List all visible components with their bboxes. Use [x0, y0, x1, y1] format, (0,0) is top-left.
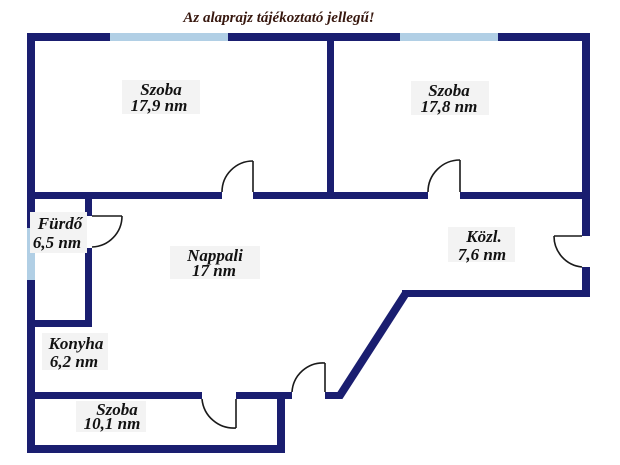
windows [27, 33, 498, 280]
wall-szoba-bottom-right-outer [277, 392, 285, 453]
wall-bottom-band-left [27, 392, 202, 399]
door-furdo-swing-arc [92, 216, 122, 247]
door-szoba1-swing-arc [222, 161, 253, 192]
wall-furdo-right-lower [85, 248, 92, 320]
wall-mid-horizontal-left [35, 192, 222, 199]
room-labels: Szoba 17,9 nm Szoba 17,8 nm Fürdő 6,5 nm… [30, 80, 515, 433]
wall-diagonal [339, 293, 406, 397]
room-label-szoba-2: Szoba 17,8 nm [411, 81, 489, 116]
room-area: 7,6 nm [458, 245, 506, 264]
room-area: 17 nm [192, 261, 236, 280]
room-label-furdo: Fürdő 6,5 nm [30, 212, 87, 253]
wall-top-rooms-divider [327, 41, 334, 192]
wall-bottom [27, 445, 285, 453]
wall-right-lower [582, 267, 590, 297]
room-area: 6,2 nm [50, 352, 98, 371]
room-name: Konyha [48, 334, 104, 353]
room-name: Közl. [465, 227, 501, 246]
wall-bottom-band-mid [236, 392, 292, 399]
window-top-right [400, 33, 498, 41]
room-label-nappali: Nappali 17 nm [170, 246, 260, 280]
floor-plan-image: Az alaprajz tájékoztató jellegű! [0, 0, 620, 465]
door-szoba3-swing-arc [202, 399, 236, 428]
wall-kozl-bottom [402, 290, 590, 297]
window-top-left [110, 33, 228, 41]
wall-mid-horizontal-right [460, 192, 582, 199]
room-area: 6,5 nm [33, 233, 81, 252]
wall-right-upper [582, 33, 590, 236]
room-area: 17,8 nm [421, 97, 478, 116]
room-label-szoba-1: Szoba 17,9 nm [122, 80, 200, 115]
room-name: Fürdő [37, 214, 84, 233]
room-area: 17,9 nm [131, 96, 188, 115]
door-entrance-right-swing-arc [554, 236, 582, 267]
wall-mid-horizontal-center [253, 192, 428, 199]
disclaimer-title: Az alaprajz tájékoztató jellegű! [182, 10, 374, 26]
room-label-konyha: Konyha 6,2 nm [42, 333, 108, 371]
door-entrance-bottom-swing-arc [292, 363, 325, 392]
room-label-kozl: Közl. 7,6 nm [448, 227, 515, 264]
wall-furdo-bottom [27, 320, 92, 327]
room-area: 10,1 nm [84, 414, 141, 433]
door-szoba2-swing-arc [428, 160, 460, 192]
room-label-szoba-3: Szoba 10,1 nm [76, 400, 146, 433]
